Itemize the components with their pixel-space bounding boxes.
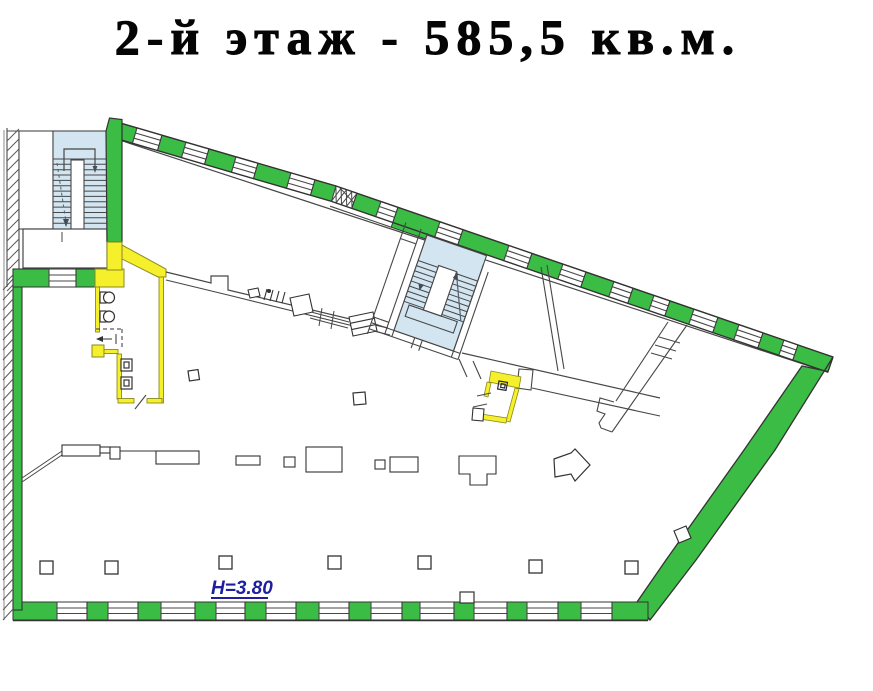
- svg-text:2-й этаж - 585,5 кв.м.: 2-й этаж - 585,5 кв.м.: [115, 9, 742, 65]
- svg-text:H=3.80: H=3.80: [211, 578, 273, 599]
